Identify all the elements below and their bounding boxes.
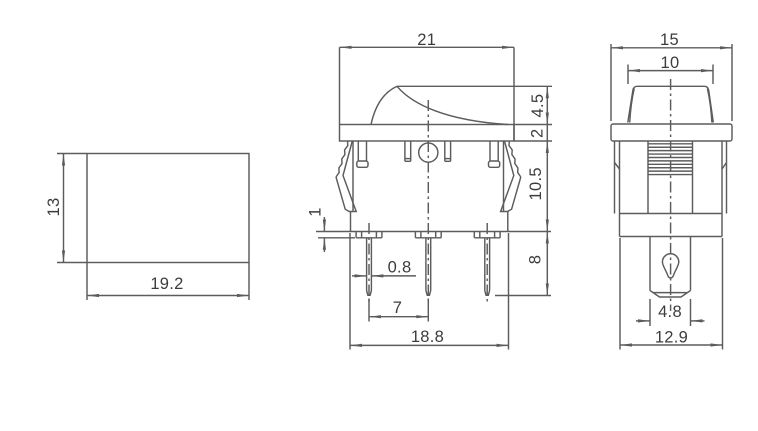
svg-text:1: 1 bbox=[307, 207, 325, 216]
svg-text:18.8: 18.8 bbox=[411, 328, 444, 346]
svg-text:12.9: 12.9 bbox=[655, 328, 688, 346]
svg-text:4.5: 4.5 bbox=[529, 94, 547, 118]
svg-text:19.2: 19.2 bbox=[150, 275, 183, 293]
svg-text:10: 10 bbox=[661, 54, 680, 72]
svg-text:15: 15 bbox=[660, 31, 679, 49]
svg-text:7: 7 bbox=[393, 299, 402, 317]
svg-text:10.5: 10.5 bbox=[527, 167, 545, 200]
svg-text:0.8: 0.8 bbox=[388, 258, 412, 276]
svg-text:2: 2 bbox=[529, 128, 547, 137]
svg-text:21: 21 bbox=[417, 31, 436, 49]
svg-text:4.8: 4.8 bbox=[658, 303, 682, 321]
svg-text:13: 13 bbox=[45, 198, 63, 217]
svg-text:8: 8 bbox=[527, 255, 545, 264]
